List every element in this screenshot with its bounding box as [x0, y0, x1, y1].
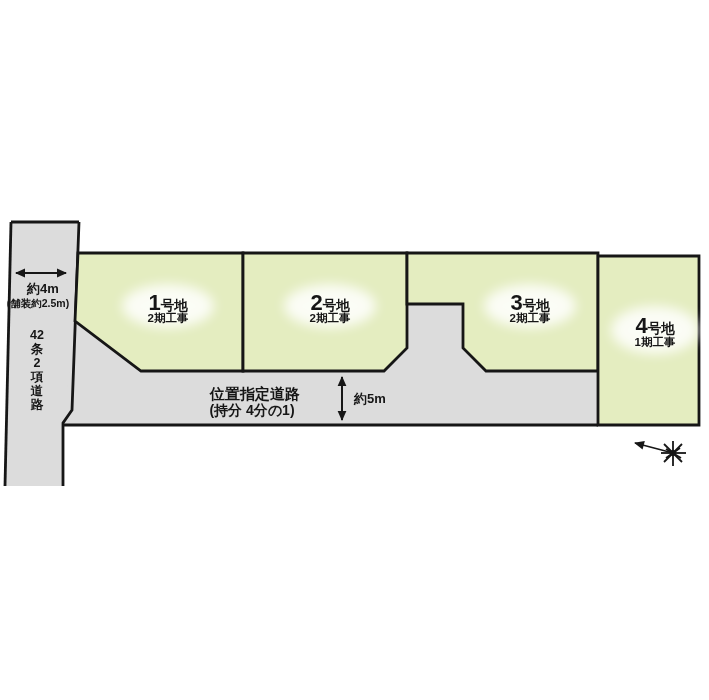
front-road-ownership: (持分 4分の1)	[209, 402, 294, 418]
lot-layout-page: 1号地 2期工事 2号地 2期工事 3号地 2期工事 4号地 1期工事 約4m …	[0, 0, 709, 700]
svg-text:道: 道	[30, 384, 44, 398]
plot-3-phase: 2期工事	[510, 312, 551, 324]
lot-layout-diagram: 1号地 2期工事 2号地 2期工事 3号地 2期工事 4号地 1期工事 約4m …	[0, 0, 709, 700]
front-road-width-label: 約5m	[353, 391, 386, 406]
svg-text:条: 条	[30, 342, 44, 356]
side-road-width-label: 約4m	[26, 281, 59, 296]
plot-2-phase: 2期工事	[310, 312, 351, 324]
north-arrow-icon	[635, 441, 686, 466]
svg-text:2: 2	[34, 356, 41, 370]
svg-text:路: 路	[30, 398, 44, 412]
svg-text:項: 項	[30, 370, 44, 384]
plot-1-phase: 2期工事	[148, 312, 189, 324]
front-road-name: 位置指定道路	[209, 385, 300, 402]
side-road-paving-label: (舗装約2.5m)	[7, 297, 69, 309]
plot-4-phase: 1期工事	[635, 336, 676, 348]
svg-text:42: 42	[30, 328, 44, 342]
side-road-name-vertical: 42 条 2 項 道 路	[30, 328, 44, 412]
